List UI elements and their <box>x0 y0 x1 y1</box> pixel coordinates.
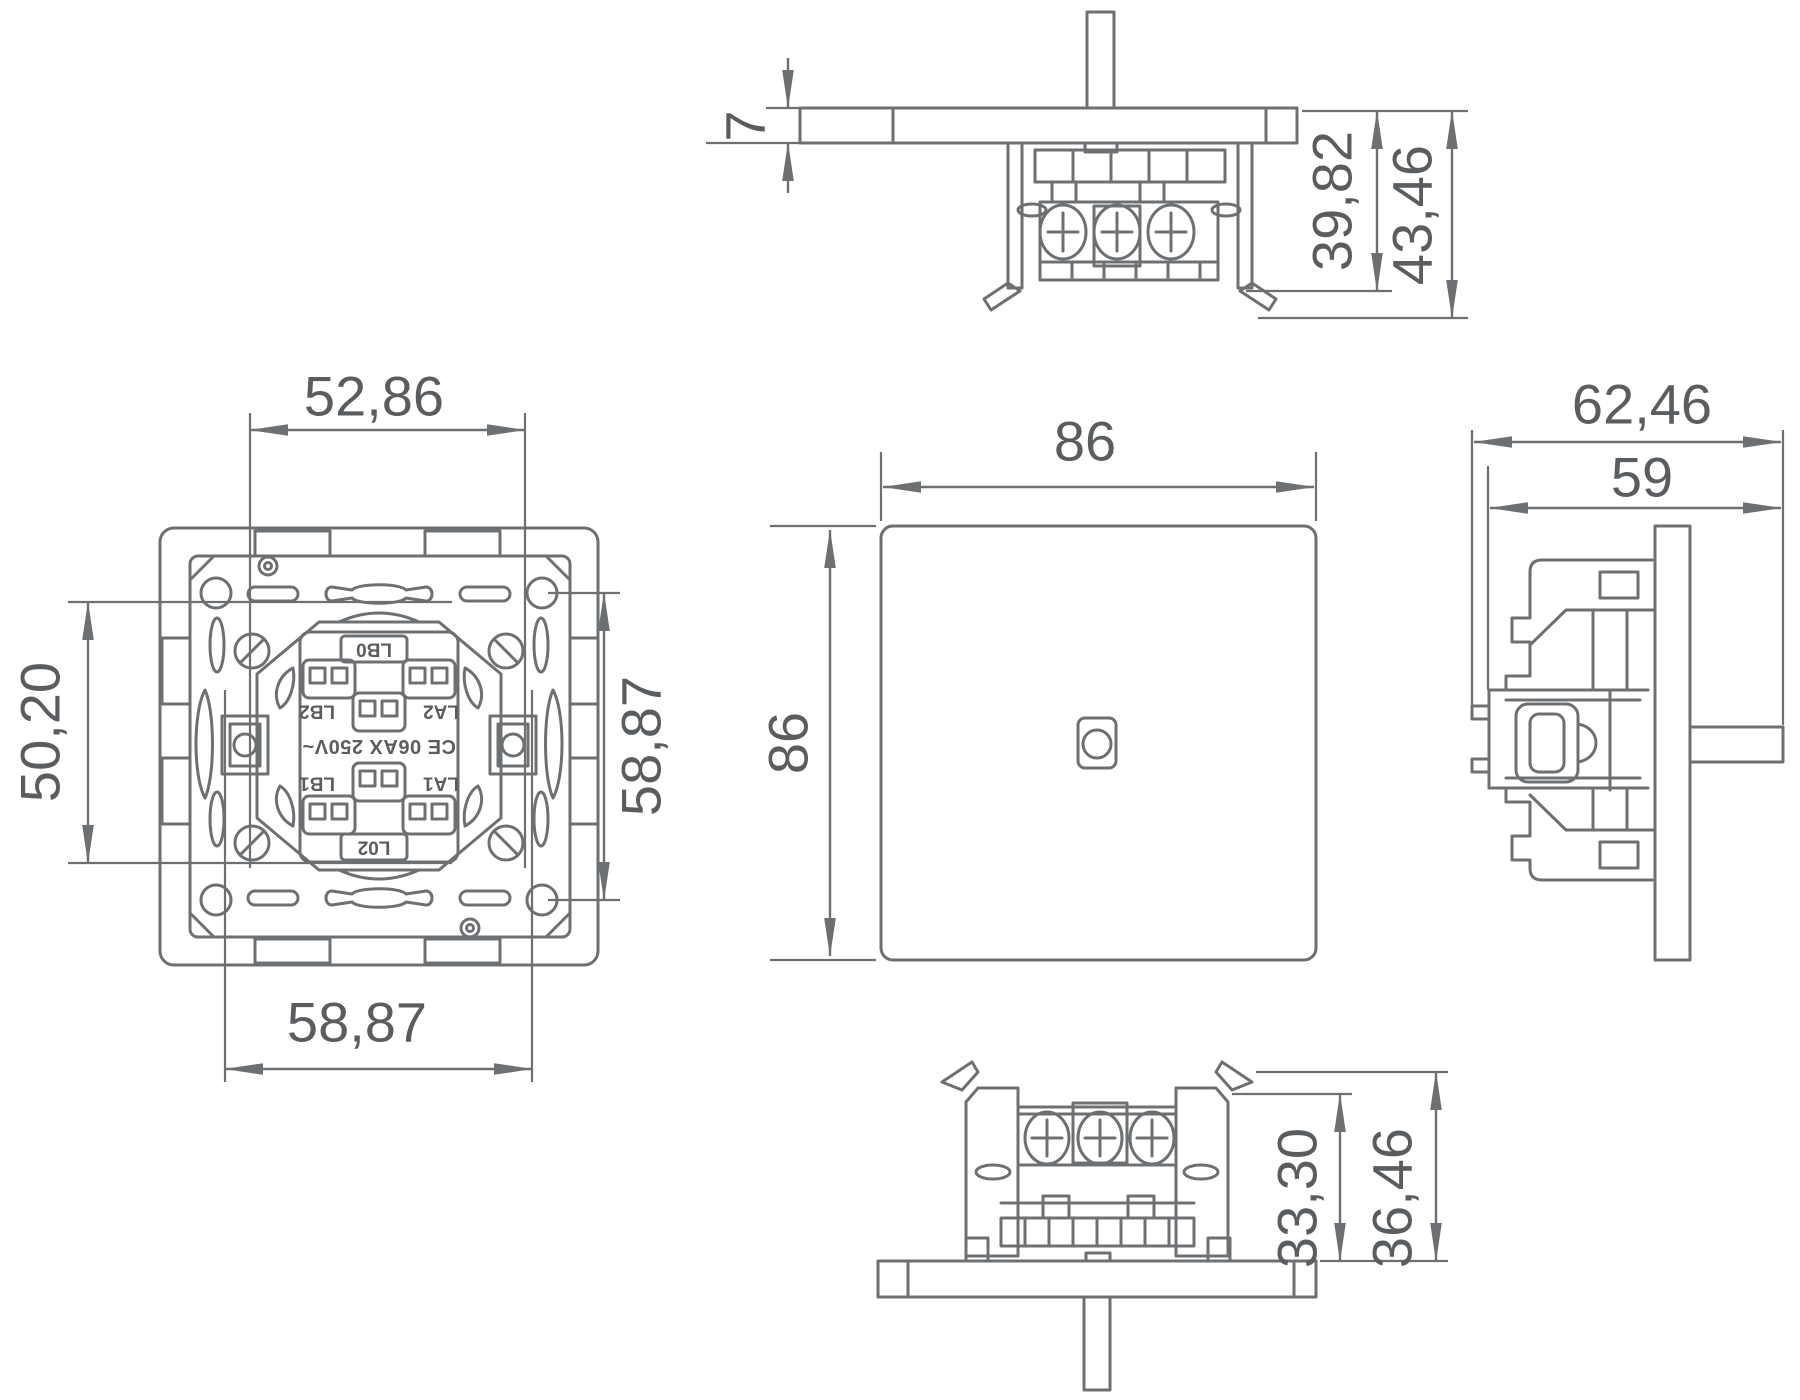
frame-tab <box>1128 1196 1154 1218</box>
mount-hole <box>201 885 231 915</box>
terminal-label-top: LB0 <box>356 639 392 660</box>
terminal-port <box>353 763 405 801</box>
corner-chamfer <box>546 556 570 580</box>
front-view <box>881 526 1316 960</box>
butterfly-slot <box>326 889 432 908</box>
terminal-side <box>1600 842 1638 868</box>
side-oval-slot <box>534 792 548 846</box>
terminal-side <box>1600 572 1638 598</box>
slot <box>248 587 298 601</box>
dim-height-total: 36,46 <box>1361 1128 1424 1268</box>
mechanism-body-side <box>1489 560 1655 880</box>
rocker-stem-bottom <box>1084 1297 1110 1390</box>
butterfly-slot <box>326 585 432 604</box>
indicator-lens <box>1083 730 1111 758</box>
support-frame <box>1035 150 1225 182</box>
cam-lobe <box>1578 724 1596 762</box>
terminal-port <box>403 796 455 834</box>
frame-tab <box>1043 1196 1069 1218</box>
claw-hook <box>464 668 481 708</box>
frame-tab <box>1052 182 1076 202</box>
side-oval-slot <box>210 792 224 846</box>
slot <box>460 891 510 905</box>
face-plate-front <box>881 526 1316 960</box>
terminal-labels: LB0 LB2 LA2 CE 06AX 250V~ LB1 LA1 L02 <box>299 639 459 858</box>
technical-drawing: 7 39,82 43,46 52,86 50,20 58,87 58,87 86… <box>0 0 1800 1400</box>
dim-depth-body: 59 <box>1611 446 1673 509</box>
claw-tab <box>1472 706 1489 719</box>
terminal-label-low-right: LA1 <box>423 773 459 794</box>
dim-depth-to-claw: 39,82 <box>1301 131 1364 271</box>
terminal-port <box>303 660 355 698</box>
mount-hole <box>201 578 231 608</box>
claw-foot <box>966 1238 988 1261</box>
dim-width-bottom: 58,87 <box>287 991 427 1054</box>
mount-ear-right <box>1184 1165 1218 1179</box>
frame-screw <box>259 557 277 575</box>
dim-height-body: 33,30 <box>1266 1128 1329 1268</box>
side-view <box>1472 526 1783 960</box>
side-oval-slot <box>210 618 224 672</box>
dim-depth-total: 43,46 <box>1381 145 1444 285</box>
edge-channel <box>425 939 500 963</box>
claw-adjuster-left <box>222 716 268 774</box>
claw-hook <box>464 786 481 826</box>
claw-hook <box>276 668 293 708</box>
flat-screw <box>489 826 523 860</box>
edge-channel <box>255 531 330 556</box>
corner-chamfer <box>190 556 214 580</box>
terminal-port <box>303 796 355 834</box>
mechanism-profile-bottom <box>942 1062 1252 1261</box>
terminal-label-low-left: LB1 <box>299 773 335 794</box>
edge-channel <box>570 758 598 824</box>
terminal-screw <box>1094 205 1140 259</box>
claw-tab <box>1472 759 1489 772</box>
slot <box>460 587 510 601</box>
terminal-label-mid-left: LB2 <box>299 701 335 722</box>
edge-channel <box>570 638 598 704</box>
claw-arm-right <box>1238 143 1252 288</box>
dim-height-right: 58,87 <box>610 676 673 816</box>
claw-foot-left <box>984 283 1020 310</box>
dim-depth-with-claws: 62,46 <box>1572 373 1712 436</box>
claw-arm-left <box>1008 143 1022 288</box>
terminal-screw <box>1148 205 1194 259</box>
dimension-texts: 7 39,82 43,46 52,86 50,20 58,87 58,87 86… <box>9 110 1713 1268</box>
terminal-screw <box>1130 1112 1174 1164</box>
face-plate-profile <box>800 108 1297 143</box>
edge-channel <box>162 758 190 824</box>
cam-assembly <box>1516 704 1596 782</box>
flat-screw <box>489 634 523 668</box>
stem-base-tab <box>1086 1253 1110 1261</box>
flat-screw <box>235 634 269 668</box>
rating-label: CE 06AX 250V~ <box>302 735 456 757</box>
mount-ear-left <box>976 1165 1010 1179</box>
mechanism-profile <box>984 143 1276 310</box>
edge-channel <box>255 939 330 963</box>
dim-height-left: 50,20 <box>9 662 72 802</box>
claw-tab-right <box>1216 1062 1252 1090</box>
frame-screw <box>461 919 479 937</box>
terminal-screw <box>1078 1112 1122 1164</box>
claw-foot-right <box>1240 283 1276 310</box>
side-oval-slot <box>534 618 548 672</box>
dim-front-width: 86 <box>1054 410 1116 473</box>
rocker-stem-side <box>1690 727 1783 762</box>
claw-wing-right <box>546 690 563 798</box>
terminal-screw <box>1040 205 1086 259</box>
dim-plate-thickness: 7 <box>714 110 777 141</box>
claw-adjuster-right <box>490 716 536 774</box>
corner-chamfer <box>546 913 570 937</box>
frame-tab <box>1140 182 1164 202</box>
dim-front-height: 86 <box>757 712 820 774</box>
terminal-screw <box>1025 1112 1069 1164</box>
slot <box>248 891 298 905</box>
mount-ear-right <box>1212 204 1240 216</box>
bottom-profile-view <box>878 1062 1316 1390</box>
top-profile-view <box>800 12 1297 310</box>
terminal-label-bottom: L02 <box>358 837 391 858</box>
terminal-port <box>403 660 455 698</box>
claw-hook <box>276 786 293 826</box>
corner-chamfer <box>190 913 214 937</box>
edge-channel <box>162 638 190 704</box>
claw-tab-left <box>942 1062 978 1090</box>
face-plate-profile-bottom <box>878 1261 1316 1297</box>
rocker-stem <box>1087 12 1114 108</box>
claw-wing-left <box>196 690 213 798</box>
indicator-window <box>1078 718 1116 768</box>
edge-channel <box>425 531 500 556</box>
face-plate-side <box>1655 526 1690 960</box>
dim-width-top: 52,86 <box>304 365 444 428</box>
flat-screw <box>235 826 269 860</box>
drawing-canvas: 7 39,82 43,46 52,86 50,20 58,87 58,87 86… <box>0 0 1800 1400</box>
terminal-port <box>353 693 405 731</box>
terminal-label-mid-right: LA2 <box>423 701 459 722</box>
